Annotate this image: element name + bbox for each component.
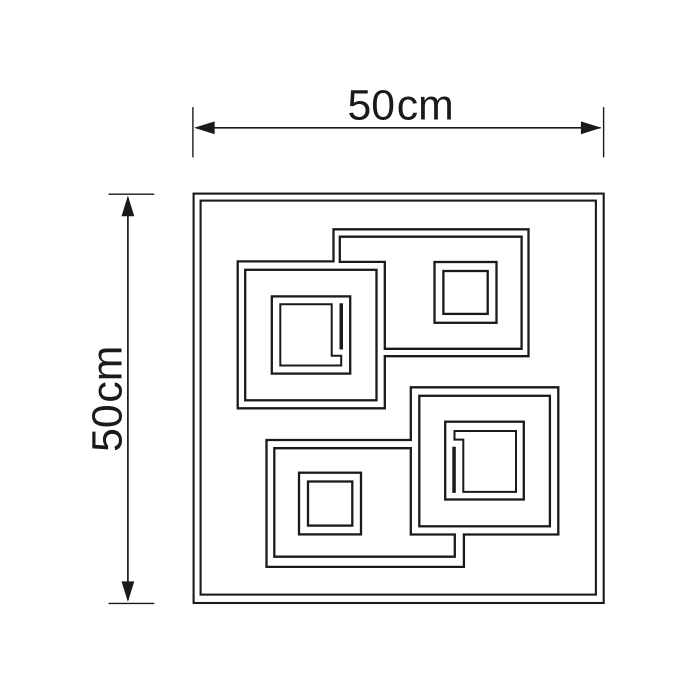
svg-text:50cm: 50cm	[348, 82, 454, 130]
svg-text:50cm: 50cm	[83, 346, 131, 452]
